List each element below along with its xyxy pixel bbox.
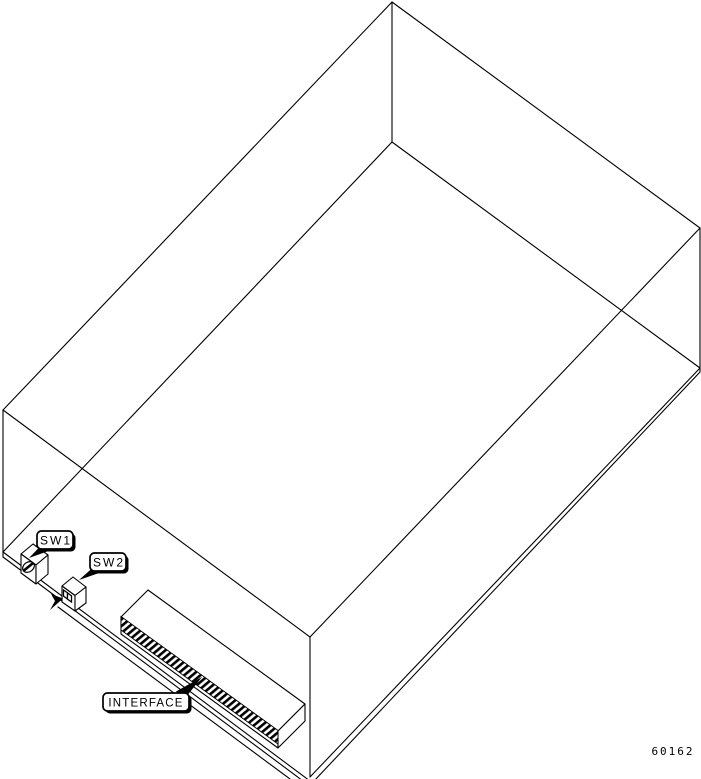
- callout-sw2: SW2: [79, 553, 129, 580]
- rim-left-line-2: [3, 557, 303, 779]
- interface-connector: [121, 590, 305, 748]
- chassis-front-right-edge: [310, 228, 700, 637]
- chassis-bottom-rear-right-edge: [392, 142, 700, 368]
- callout-sw2-label: SW2: [93, 556, 125, 570]
- chassis-top-left-edge: [3, 2, 392, 410]
- figure-number: 60162: [651, 745, 694, 758]
- rim-right-line-2: [314, 372, 700, 779]
- callout-interface-label: INTERFACE: [108, 698, 183, 710]
- chassis-bottom-rear-left-edge: [3, 142, 392, 552]
- sw2-switch: [50, 577, 86, 611]
- chassis-wireframe: [3, 2, 700, 777]
- callout-sw1: SW1: [29, 531, 76, 558]
- figure-canvas: SW1 SW2 INTERFACE 60162: [0, 0, 701, 779]
- wireframe-illustration: SW1 SW2 INTERFACE 60162: [0, 0, 701, 779]
- chassis-top-right-edge: [392, 2, 700, 228]
- callout-sw1-label: SW1: [40, 534, 72, 548]
- rim-right-line-1: [310, 368, 700, 777]
- rim-left-line-1: [3, 552, 310, 779]
- pin1-arrow-icon: [50, 594, 63, 610]
